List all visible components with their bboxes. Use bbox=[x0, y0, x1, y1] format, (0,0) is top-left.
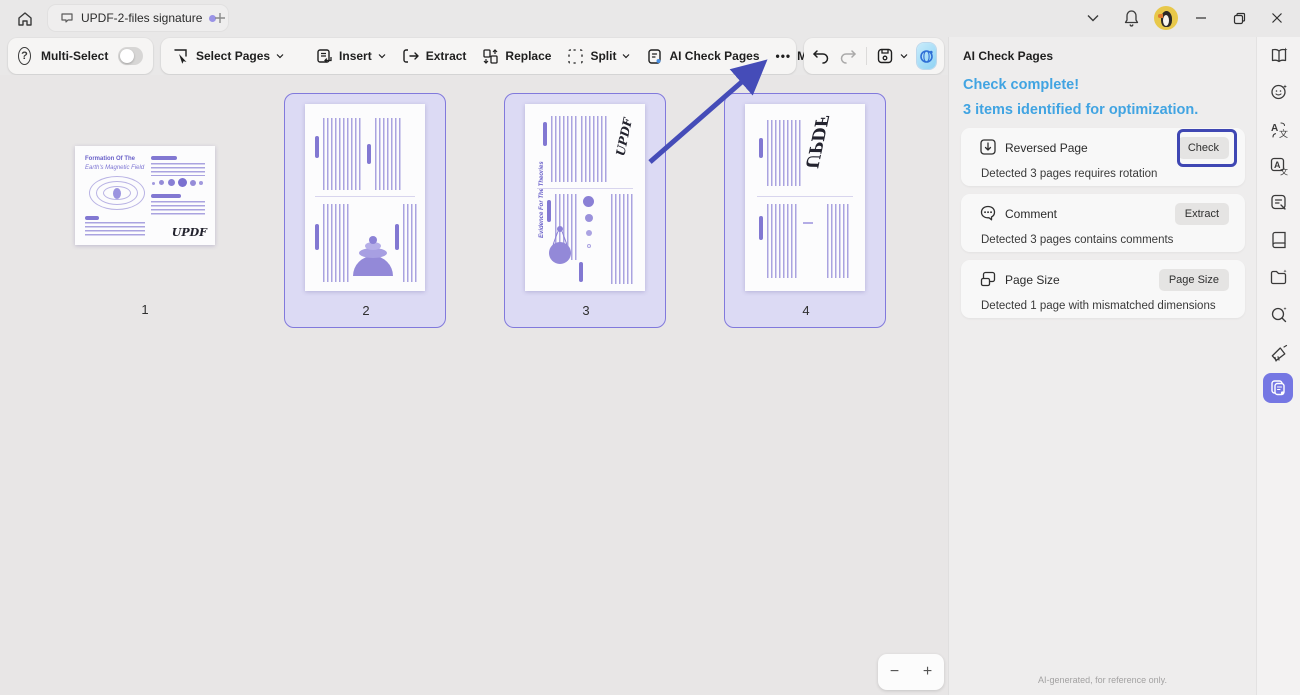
extract-icon bbox=[402, 48, 420, 65]
page-size-button[interactable]: Page Size bbox=[1159, 269, 1229, 291]
new-tab-icon bbox=[214, 12, 226, 24]
notifications-button[interactable] bbox=[1116, 3, 1146, 33]
chevron-down-icon bbox=[276, 52, 284, 60]
save-chevron-icon bbox=[900, 52, 908, 60]
close-button[interactable] bbox=[1262, 3, 1292, 33]
reversed-page-icon bbox=[979, 138, 997, 156]
ai-note-icon[interactable] bbox=[1268, 192, 1290, 214]
svg-text:文: 文 bbox=[1279, 128, 1288, 140]
split-button[interactable]: Split bbox=[567, 48, 630, 65]
chevron-down-icon bbox=[378, 52, 386, 60]
toolbar-group-main: Select Pages Insert Extract Replace Spli… bbox=[161, 38, 796, 74]
page-number-2: 2 bbox=[346, 303, 386, 318]
book-icon[interactable] bbox=[1268, 229, 1290, 251]
panel-title: AI Check Pages bbox=[963, 49, 1053, 63]
check-button[interactable]: Check bbox=[1178, 137, 1229, 159]
page3-signature: UPDF bbox=[613, 117, 635, 157]
minimize-button[interactable] bbox=[1186, 3, 1216, 33]
ai-check-pages-active-icon bbox=[1269, 379, 1287, 397]
zoom-in-button[interactable]: + bbox=[923, 664, 932, 680]
page1-subtitle: Earth's Magnetic Field bbox=[85, 165, 144, 171]
check-status: Check complete! bbox=[963, 77, 1079, 93]
home-icon bbox=[16, 10, 34, 28]
zoom-out-button[interactable]: − bbox=[890, 664, 899, 680]
new-tab-button[interactable] bbox=[210, 8, 230, 28]
dropdown-chevron-icon bbox=[1087, 14, 1099, 22]
account-dropdown-button[interactable] bbox=[1078, 3, 1108, 33]
card-reversed-page: Reversed Page Check Detected 3 pages req… bbox=[961, 128, 1245, 186]
ai-search-icon[interactable] bbox=[1268, 304, 1290, 326]
card-title: Comment bbox=[1005, 207, 1057, 221]
ai-assistant-icon bbox=[918, 48, 935, 65]
ai-check-pages-icon bbox=[646, 48, 663, 65]
ai-folder-icon[interactable] bbox=[1268, 267, 1290, 289]
page-number-4: 4 bbox=[786, 303, 826, 318]
restore-icon bbox=[1233, 12, 1246, 25]
save-icon bbox=[876, 47, 894, 65]
undo-icon bbox=[812, 48, 830, 64]
insert-button[interactable]: Insert bbox=[316, 48, 386, 65]
close-icon bbox=[1271, 12, 1283, 24]
card-title: Page Size bbox=[1005, 273, 1060, 287]
ai-reader-icon[interactable] bbox=[1268, 45, 1290, 67]
toolbar-group-multiselect: ? Multi-Select bbox=[8, 38, 153, 74]
avatar[interactable] bbox=[1154, 6, 1178, 30]
comment-icon bbox=[979, 204, 997, 222]
page-number-1: 1 bbox=[125, 302, 165, 317]
help-icon[interactable]: ? bbox=[18, 47, 31, 65]
card-detail: Detected 1 page with mismatched dimensio… bbox=[981, 300, 1216, 312]
items-identified-status: 3 items identified for optimization. bbox=[963, 102, 1198, 118]
svg-text:文: 文 bbox=[1280, 167, 1288, 177]
translate-icon[interactable]: A文 bbox=[1268, 119, 1290, 141]
redo-icon bbox=[839, 48, 857, 64]
card-page-size: Page Size Page Size Detected 1 page with… bbox=[961, 260, 1245, 318]
card-detail: Detected 3 pages requires rotation bbox=[981, 168, 1157, 180]
redo-button[interactable] bbox=[839, 48, 857, 64]
ai-assistant-button[interactable] bbox=[917, 43, 936, 69]
split-icon bbox=[567, 48, 584, 65]
updf-app-window: UPDF-2-files signature bbox=[0, 0, 1300, 695]
multi-select-label: Multi-Select bbox=[41, 49, 108, 63]
ai-disclaimer: AI-generated, for reference only. bbox=[949, 675, 1256, 685]
select-pages-icon bbox=[173, 48, 190, 65]
card-detail: Detected 3 pages contains comments bbox=[981, 234, 1173, 246]
translate-box-icon[interactable]: A文 bbox=[1268, 155, 1290, 177]
bell-icon bbox=[1123, 9, 1140, 27]
select-pages-button[interactable]: Select Pages bbox=[173, 48, 284, 65]
extract-comments-button[interactable]: Extract bbox=[1175, 203, 1229, 225]
page-organize-canvas: Formation Of The Earth's Magnetic Field bbox=[0, 75, 948, 695]
announce-icon[interactable] bbox=[1268, 342, 1290, 364]
replace-button[interactable]: Replace bbox=[482, 48, 551, 65]
ai-check-pages-button[interactable]: AI Check Pages bbox=[646, 48, 759, 65]
page-thumbnail-1[interactable]: Formation Of The Earth's Magnetic Field bbox=[75, 146, 215, 245]
card-title: Reversed Page bbox=[1005, 141, 1088, 155]
chevron-down-icon bbox=[622, 52, 630, 60]
restore-button[interactable] bbox=[1224, 3, 1254, 33]
toolbar-group-history bbox=[804, 38, 944, 74]
insert-icon bbox=[316, 48, 333, 65]
titlebar: UPDF-2-files signature bbox=[0, 0, 1300, 36]
titlebar-right bbox=[1078, 0, 1292, 36]
zoom-controls: − + bbox=[878, 654, 944, 690]
page1-signature: UPDF bbox=[172, 226, 207, 239]
tab-title: UPDF-2-files signature bbox=[81, 11, 202, 25]
ai-check-pages-panel: AI Check Pages Check complete! 3 items i… bbox=[948, 37, 1256, 695]
page-thumbnail-3[interactable]: Evidence For The Theories UPDF bbox=[504, 93, 666, 328]
page-thumbnail-2[interactable]: 2 bbox=[284, 93, 446, 328]
page3-side-title: Evidence For The Theories bbox=[539, 148, 545, 238]
ai-chat-icon[interactable] bbox=[1268, 81, 1290, 103]
ai-check-pages-tool-active[interactable] bbox=[1263, 373, 1293, 403]
document-tab-icon bbox=[60, 11, 74, 25]
save-button[interactable] bbox=[876, 47, 908, 65]
svg-text:A: A bbox=[1271, 123, 1278, 134]
home-button[interactable] bbox=[12, 6, 38, 32]
page-size-icon bbox=[979, 270, 997, 288]
extract-button[interactable]: Extract bbox=[402, 48, 467, 65]
replace-icon bbox=[482, 48, 499, 65]
page4-signature: UPDF bbox=[800, 113, 831, 170]
toolbar: ? Multi-Select Select Pages Insert Extra… bbox=[0, 37, 948, 75]
undo-button[interactable] bbox=[812, 48, 830, 64]
multi-select-toggle[interactable] bbox=[118, 47, 143, 65]
document-tab[interactable]: UPDF-2-files signature bbox=[48, 5, 228, 31]
tools-ribbon: A文 A文 bbox=[1256, 37, 1300, 695]
more-dots-icon: ••• bbox=[776, 49, 792, 63]
minimize-icon bbox=[1195, 12, 1207, 24]
card-comment: Comment Extract Detected 3 pages contain… bbox=[961, 194, 1245, 252]
page-number-3: 3 bbox=[566, 303, 606, 318]
page-thumbnail-4[interactable]: UPDF 4 bbox=[724, 93, 886, 328]
page1-title: Formation Of The bbox=[85, 156, 135, 162]
